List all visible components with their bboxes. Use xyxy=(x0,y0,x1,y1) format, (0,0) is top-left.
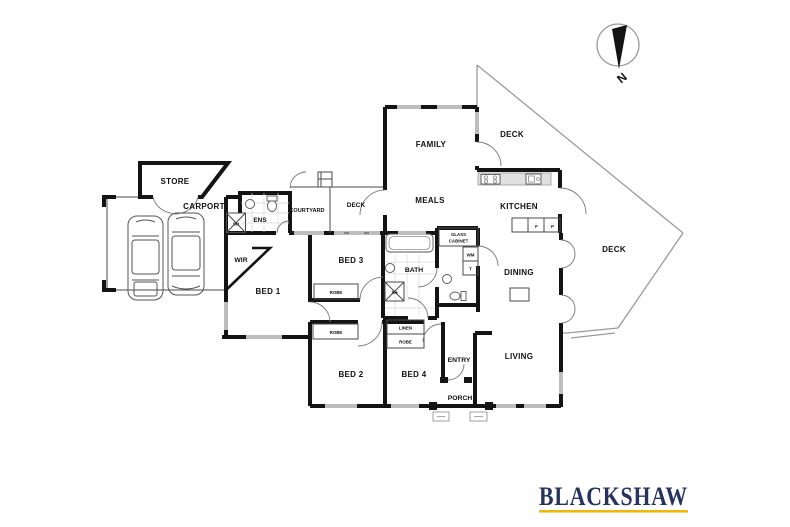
wc-toilet-icon xyxy=(450,292,460,300)
wm-label: WM xyxy=(467,253,475,258)
glass-cabinet-label-1: GLASS xyxy=(451,232,466,237)
floorplan-drawing: N xyxy=(0,0,790,527)
ens-label: ENS xyxy=(253,217,267,224)
fireplace-icon xyxy=(510,288,529,301)
bath-shower-label: SH xyxy=(391,290,397,295)
kitchen-bench xyxy=(478,173,551,185)
wir-fitting xyxy=(226,248,270,290)
shower-label: SH xyxy=(233,222,239,227)
carport-label: CARPORT xyxy=(183,202,225,211)
courtyard-label: COURTYARD xyxy=(289,208,324,214)
deck-mid-label: DECK xyxy=(347,202,366,209)
blackshaw-logo: BLACKSHAW xyxy=(539,482,688,513)
dining-label: DINING xyxy=(504,268,534,277)
logo-text: BLACKSHAW xyxy=(539,482,688,511)
logo-underline xyxy=(539,510,688,513)
robe-bed4-label: ROBE xyxy=(399,340,412,345)
wir-label: WIR xyxy=(234,257,247,264)
bathroom: SH xyxy=(385,234,435,318)
pantry-label: P xyxy=(551,224,554,229)
north-arrow-icon xyxy=(612,25,627,69)
laundry-fixtures: WM T xyxy=(443,247,479,301)
bath-label: BATH xyxy=(405,267,423,274)
deck-right-label: DECK xyxy=(602,245,626,254)
cooktop-icon xyxy=(481,175,500,185)
toilet-icon xyxy=(268,201,277,212)
glass-cabinet: GLASS CABINET xyxy=(439,228,478,246)
living-label: LIVING xyxy=(505,352,533,361)
store-label: STORE xyxy=(161,177,190,186)
courtyard-deck-lines xyxy=(290,172,385,233)
bath-basin-icon xyxy=(386,264,395,273)
bed1-label: BED 1 xyxy=(255,287,280,296)
floorplan-page: N xyxy=(0,0,790,527)
basin-icon xyxy=(246,200,255,209)
glass-cabinet-label-2: CABINET xyxy=(449,239,469,244)
porch-label: PORCH xyxy=(448,395,473,402)
kitchen-label: KITCHEN xyxy=(500,202,538,211)
laundry-sink-icon xyxy=(443,275,452,284)
robe-bed2-label: ROBE xyxy=(330,330,343,335)
fridge-label: F xyxy=(535,224,538,229)
north-label: N xyxy=(614,70,630,86)
entry-label: ENTRY xyxy=(448,357,471,364)
bed2-label: BED 2 xyxy=(338,370,363,379)
car-right xyxy=(168,213,204,295)
family-label: FAMILY xyxy=(416,140,447,149)
windows xyxy=(226,107,561,406)
robe-bed3-label: ROBE xyxy=(330,290,343,295)
linen-label: LINEN xyxy=(399,326,412,331)
meals-label: MEALS xyxy=(415,196,445,205)
bed4-label: BED 4 xyxy=(401,370,426,379)
deck-top-label: DECK xyxy=(500,130,524,139)
bed3-label: BED 3 xyxy=(338,256,363,265)
tub-label: T xyxy=(469,267,472,272)
car-left xyxy=(128,216,163,300)
pantry-fridge: F P xyxy=(512,218,560,232)
compass: N xyxy=(597,24,639,86)
